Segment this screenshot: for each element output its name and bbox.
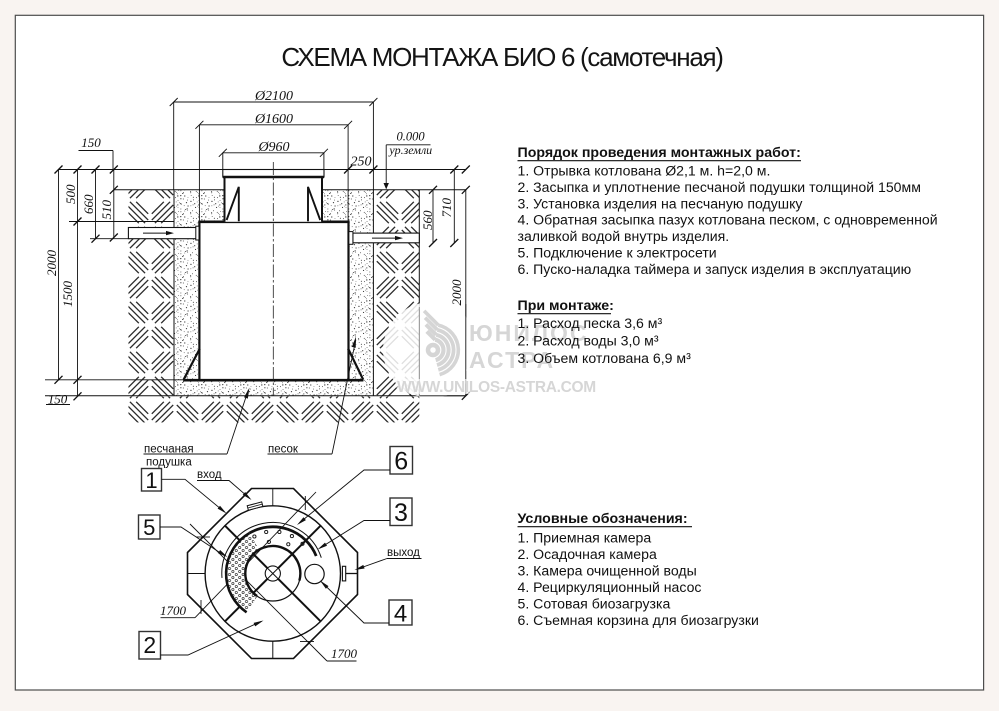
svg-text:660: 660 bbox=[81, 194, 96, 214]
svg-text:Ø2100: Ø2100 bbox=[254, 89, 293, 104]
svg-text:150: 150 bbox=[48, 392, 68, 407]
svg-text:2000: 2000 bbox=[44, 250, 59, 277]
svg-text:Ø1600: Ø1600 bbox=[254, 112, 293, 127]
svg-text:выход: выход bbox=[387, 547, 420, 559]
svg-text:3. Камера очищенной воды: 3. Камера очищенной воды bbox=[518, 563, 697, 579]
svg-text:1. Приемная камера: 1. Приемная камера bbox=[518, 530, 652, 546]
svg-text:1700: 1700 bbox=[331, 646, 358, 661]
svg-text:ур.земли: ур.земли bbox=[388, 143, 432, 157]
svg-text:СХЕМА МОНТАЖА БИО 6 (самотечна: СХЕМА МОНТАЖА БИО 6 (самотечная) bbox=[281, 42, 723, 72]
svg-text:подушка: подушка bbox=[146, 457, 192, 469]
svg-text:6. Съемная корзина для биозагр: 6. Съемная корзина для биозагрузки bbox=[518, 612, 759, 628]
svg-text:1500: 1500 bbox=[60, 281, 75, 308]
svg-text:5: 5 bbox=[143, 515, 155, 540]
svg-text:1. Отрывка котлована Ø2,1 м. h: 1. Отрывка котлована Ø2,1 м. h=2,0 м. bbox=[518, 163, 771, 179]
svg-text:2000: 2000 bbox=[449, 279, 464, 306]
svg-text:710: 710 bbox=[439, 198, 454, 218]
svg-text:500: 500 bbox=[63, 184, 78, 204]
svg-text:WWW.UNILOS-ASTRA.COM: WWW.UNILOS-ASTRA.COM bbox=[397, 379, 596, 396]
svg-text:6: 6 bbox=[394, 447, 408, 475]
svg-text:150: 150 bbox=[81, 135, 101, 150]
svg-text:4. Обратная засыпка пазух котл: 4. Обратная засыпка пазух котлована песк… bbox=[518, 212, 938, 228]
svg-text:Ø960: Ø960 bbox=[257, 140, 289, 155]
svg-text:3. Установка изделия на песчан: 3. Установка изделия на песчаную подушку bbox=[518, 195, 804, 211]
svg-text:1: 1 bbox=[145, 468, 157, 493]
svg-text:560: 560 bbox=[420, 210, 435, 230]
svg-text:4: 4 bbox=[394, 601, 407, 628]
svg-text:4. Рециркуляционный насос: 4. Рециркуляционный насос bbox=[518, 579, 702, 595]
svg-text:При монтаже:: При монтаже: bbox=[518, 298, 614, 314]
svg-text:2. Осадочная камера: 2. Осадочная камера bbox=[518, 546, 657, 562]
svg-text:2. Расход воды 3,0 м³: 2. Расход воды 3,0 м³ bbox=[518, 333, 659, 349]
svg-text:Порядок проведения монтажных р: Порядок проведения монтажных работ: bbox=[518, 145, 801, 161]
svg-text:1. Расход песка 3,6 м³: 1. Расход песка 3,6 м³ bbox=[518, 315, 663, 331]
svg-text:Условные обозначения:: Условные обозначения: bbox=[518, 511, 688, 527]
svg-text:3: 3 bbox=[394, 499, 408, 527]
svg-text:5. Подключение к электросети: 5. Подключение к электросети bbox=[518, 245, 717, 261]
svg-text:2. Засыпка и уплотнение песчан: 2. Засыпка и уплотнение песчаной подушки… bbox=[518, 179, 921, 195]
svg-text:3. Объем котлована 6,9 м³: 3. Объем котлована 6,9 м³ bbox=[518, 350, 692, 366]
svg-text:1700: 1700 bbox=[160, 603, 187, 618]
svg-text:510: 510 bbox=[99, 200, 114, 220]
svg-text:250: 250 bbox=[351, 155, 372, 170]
svg-text:2: 2 bbox=[143, 632, 156, 658]
svg-text:0.000: 0.000 bbox=[396, 130, 425, 144]
svg-text:6. Пуско-наладка таймера и зап: 6. Пуско-наладка таймера и запуск издели… bbox=[518, 261, 912, 277]
svg-text:вход: вход bbox=[197, 469, 222, 481]
svg-text:5. Сотовая биозагрузка: 5. Сотовая биозагрузка bbox=[518, 596, 671, 612]
svg-text:заливкой водой внутрь изделия.: заливкой водой внутрь изделия. bbox=[518, 228, 730, 244]
